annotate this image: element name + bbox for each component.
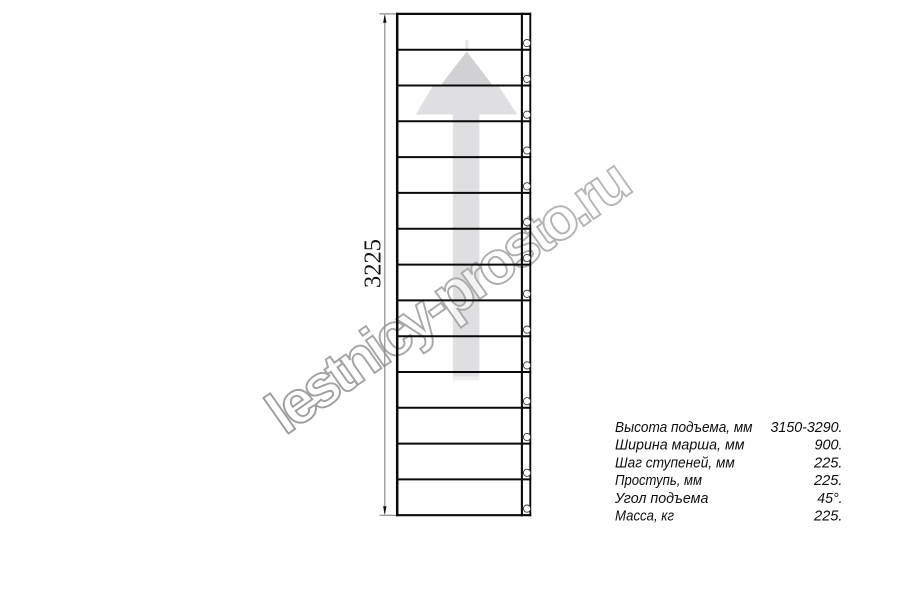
svg-text:3225: 3225 (360, 239, 387, 288)
svg-text:Шаг ступеней, мм: Шаг ступеней, мм (615, 455, 735, 471)
svg-text:225.: 225. (813, 455, 843, 471)
svg-text:Проступь, мм: Проступь, мм (615, 473, 702, 489)
svg-text:3150-3290.: 3150-3290. (771, 420, 843, 436)
svg-text:225.: 225. (813, 473, 843, 489)
svg-text:Ширина марша, мм: Ширина марша, мм (615, 438, 745, 454)
svg-text:Угол подъема: Угол подъема (614, 491, 708, 507)
svg-text:225.: 225. (813, 509, 843, 525)
svg-text:900.: 900. (815, 438, 843, 454)
svg-text:45°.: 45°. (817, 491, 842, 507)
svg-text:Масса, кг: Масса, кг (615, 509, 674, 525)
svg-text:Высота подъема, мм: Высота подъема, мм (615, 420, 753, 436)
